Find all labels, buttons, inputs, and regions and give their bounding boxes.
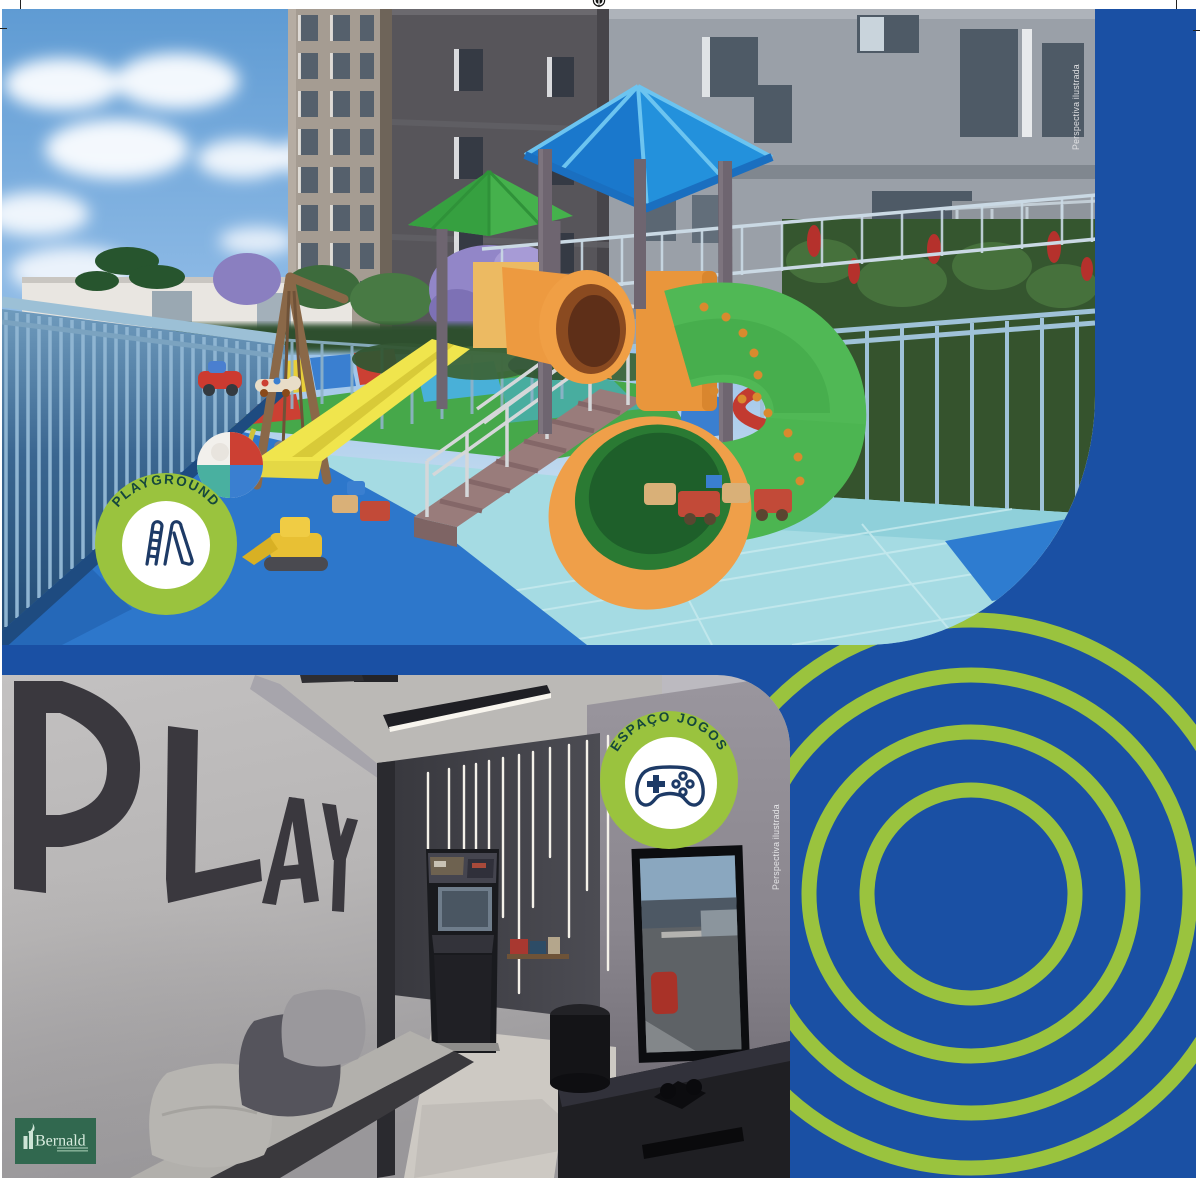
svg-text:Bernald: Bernald <box>35 1133 86 1150</box>
